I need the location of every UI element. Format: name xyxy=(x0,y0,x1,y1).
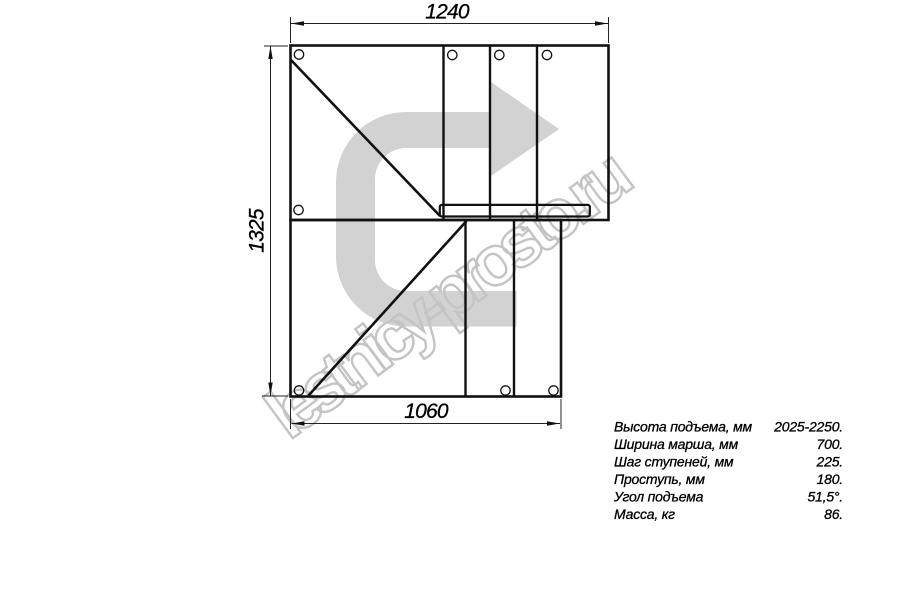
svg-text:Угол подъема: Угол подъема xyxy=(613,489,704,505)
svg-text:Проступь, мм: Проступь, мм xyxy=(614,471,705,487)
svg-text:Шаг ступеней, мм: Шаг ступеней, мм xyxy=(614,454,734,470)
svg-text:1240: 1240 xyxy=(425,1,470,24)
svg-text:700.: 700. xyxy=(817,436,843,452)
svg-text:180.: 180. xyxy=(817,471,843,487)
svg-text:225.: 225. xyxy=(816,454,843,470)
svg-text:Масса, кг: Масса, кг xyxy=(614,506,675,522)
svg-text:2025-2250.: 2025-2250. xyxy=(773,419,843,435)
svg-text:86.: 86. xyxy=(824,506,843,522)
svg-text:51,5°.: 51,5°. xyxy=(807,489,843,505)
svg-text:1325: 1325 xyxy=(246,208,269,253)
svg-text:1060: 1060 xyxy=(404,400,449,423)
svg-text:Высота подъема, мм: Высота подъема, мм xyxy=(614,419,753,435)
svg-text:Ширина марша, мм: Ширина марша, мм xyxy=(614,436,739,452)
